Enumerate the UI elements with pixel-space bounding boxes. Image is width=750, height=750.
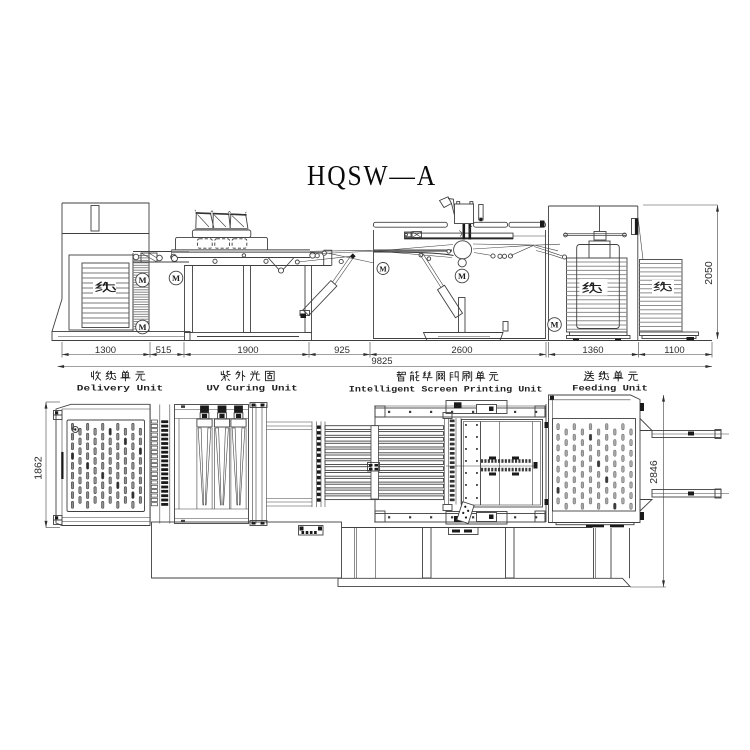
svg-text:1300: 1300 bbox=[95, 345, 116, 356]
svg-text:1862: 1862 bbox=[33, 456, 45, 480]
svg-text:Feeding Unit: Feeding Unit bbox=[572, 385, 648, 394]
svg-text:M: M bbox=[379, 264, 387, 273]
svg-text:1900: 1900 bbox=[237, 345, 258, 356]
svg-text:UV Curing Unit: UV Curing Unit bbox=[206, 385, 297, 394]
svg-text:515: 515 bbox=[156, 345, 172, 356]
svg-text:1100: 1100 bbox=[664, 345, 684, 356]
svg-text:HQSW—A: HQSW—A bbox=[307, 161, 437, 192]
svg-text:2846: 2846 bbox=[648, 460, 660, 484]
svg-text:1360: 1360 bbox=[582, 345, 603, 356]
svg-text:2600: 2600 bbox=[451, 345, 472, 356]
svg-text:M: M bbox=[138, 275, 146, 285]
svg-text:M: M bbox=[172, 273, 180, 283]
svg-text:M: M bbox=[458, 271, 466, 281]
svg-text:925: 925 bbox=[334, 345, 350, 356]
svg-text:2050: 2050 bbox=[703, 261, 715, 285]
svg-text:Intelligent Screen Printing Un: Intelligent Screen Printing Unit bbox=[349, 386, 543, 395]
svg-text:M: M bbox=[138, 322, 146, 332]
svg-text:Delivery Unit: Delivery Unit bbox=[77, 385, 164, 394]
svg-text:M: M bbox=[550, 320, 558, 330]
svg-text:9825: 9825 bbox=[371, 356, 392, 367]
